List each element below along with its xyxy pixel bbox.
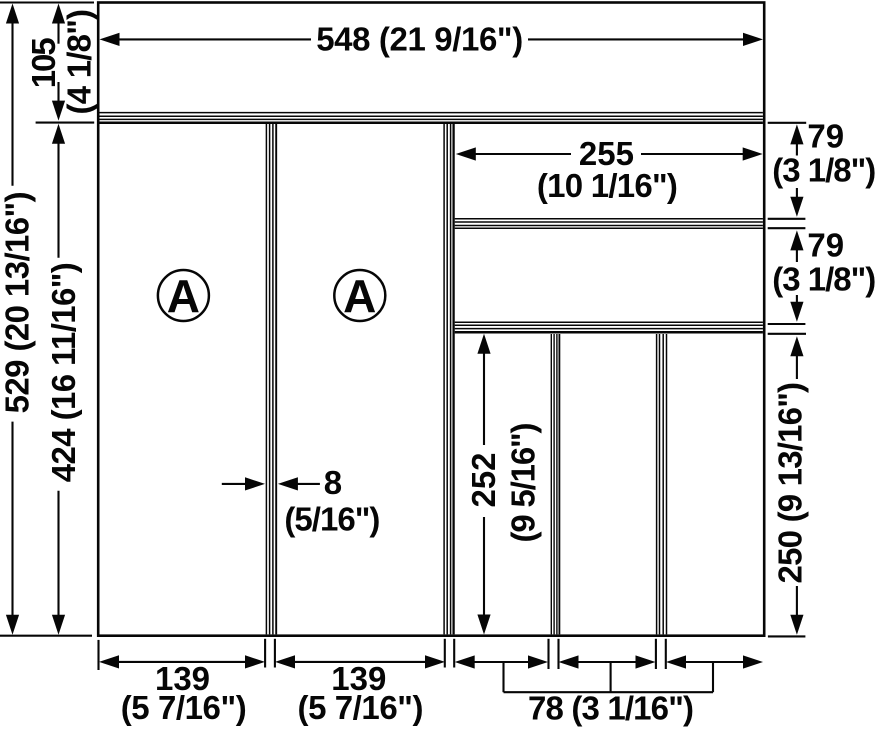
svg-text:252: 252 [465, 452, 502, 507]
svg-text:(3 1/8"): (3 1/8") [772, 261, 876, 298]
svg-text:105: 105 [25, 37, 62, 88]
svg-text:(9 5/16"): (9 5/16") [505, 423, 542, 543]
svg-text:A: A [343, 270, 376, 322]
svg-text:79: 79 [807, 118, 844, 155]
svg-text:(5 7/16"): (5 7/16") [121, 689, 247, 726]
svg-text:(3 1/8"): (3 1/8") [772, 152, 876, 189]
svg-text:(4 1/8"): (4 1/8") [61, 9, 98, 115]
svg-text:78 (3 1/16"): 78 (3 1/16") [528, 690, 694, 727]
svg-text:250 (9 13/16"): 250 (9 13/16") [771, 382, 808, 584]
svg-text:A: A [167, 270, 200, 322]
svg-text:548 (21 9/16"): 548 (21 9/16") [316, 20, 523, 57]
svg-text:424 (16 11/16"): 424 (16 11/16") [45, 262, 82, 482]
svg-text:79: 79 [807, 227, 844, 264]
svg-text:(5/16"): (5/16") [284, 501, 380, 538]
svg-text:(10 1/16"): (10 1/16") [537, 167, 678, 204]
svg-text:8: 8 [324, 464, 342, 501]
svg-text:529 (20 13/16"): 529 (20 13/16") [0, 191, 36, 413]
svg-text:(5 7/16"): (5 7/16") [298, 689, 424, 726]
